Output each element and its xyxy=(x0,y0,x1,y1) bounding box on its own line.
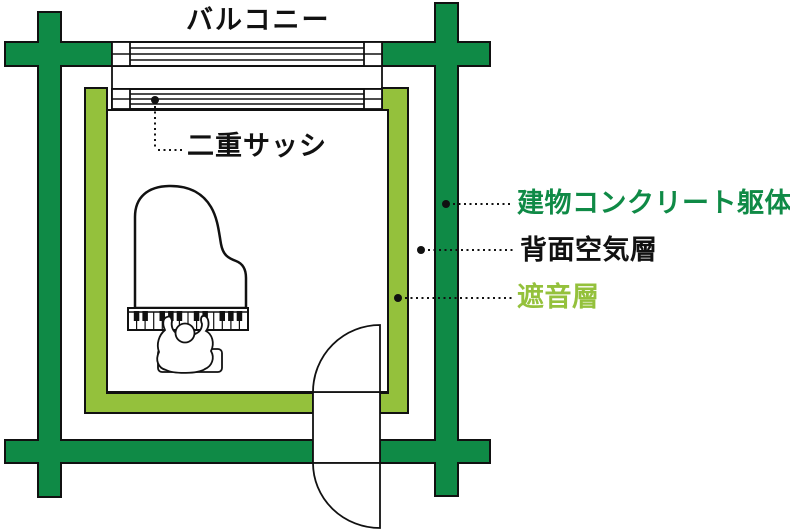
callout-dot-insulation-layer xyxy=(394,294,402,302)
balcony-label: バルコニー xyxy=(186,7,330,34)
outer-sash-window xyxy=(112,42,382,66)
double-sash-label: 二重サッシ xyxy=(187,133,327,160)
concrete-frame-label: 建物コンクリート躯体 xyxy=(517,190,790,217)
callout-dot-air-layer xyxy=(417,246,425,254)
callout-dot-concrete-frame xyxy=(442,200,450,208)
floor-plan-drawing xyxy=(0,0,790,530)
door-swing-outer xyxy=(313,463,380,528)
pianist-head xyxy=(176,324,195,343)
sash-gap-sides xyxy=(112,66,382,89)
sound-insulation-label: 遮音層 xyxy=(517,284,600,311)
soundproof-room-floor-plan: バルコニー 二重サッシ 建物コンクリート躯体 背面空気層 遮音層 xyxy=(0,0,790,530)
door-opening xyxy=(313,392,380,463)
rear-air-layer-label: 背面空気層 xyxy=(520,237,658,264)
callout-dot-double-sash xyxy=(151,96,159,104)
